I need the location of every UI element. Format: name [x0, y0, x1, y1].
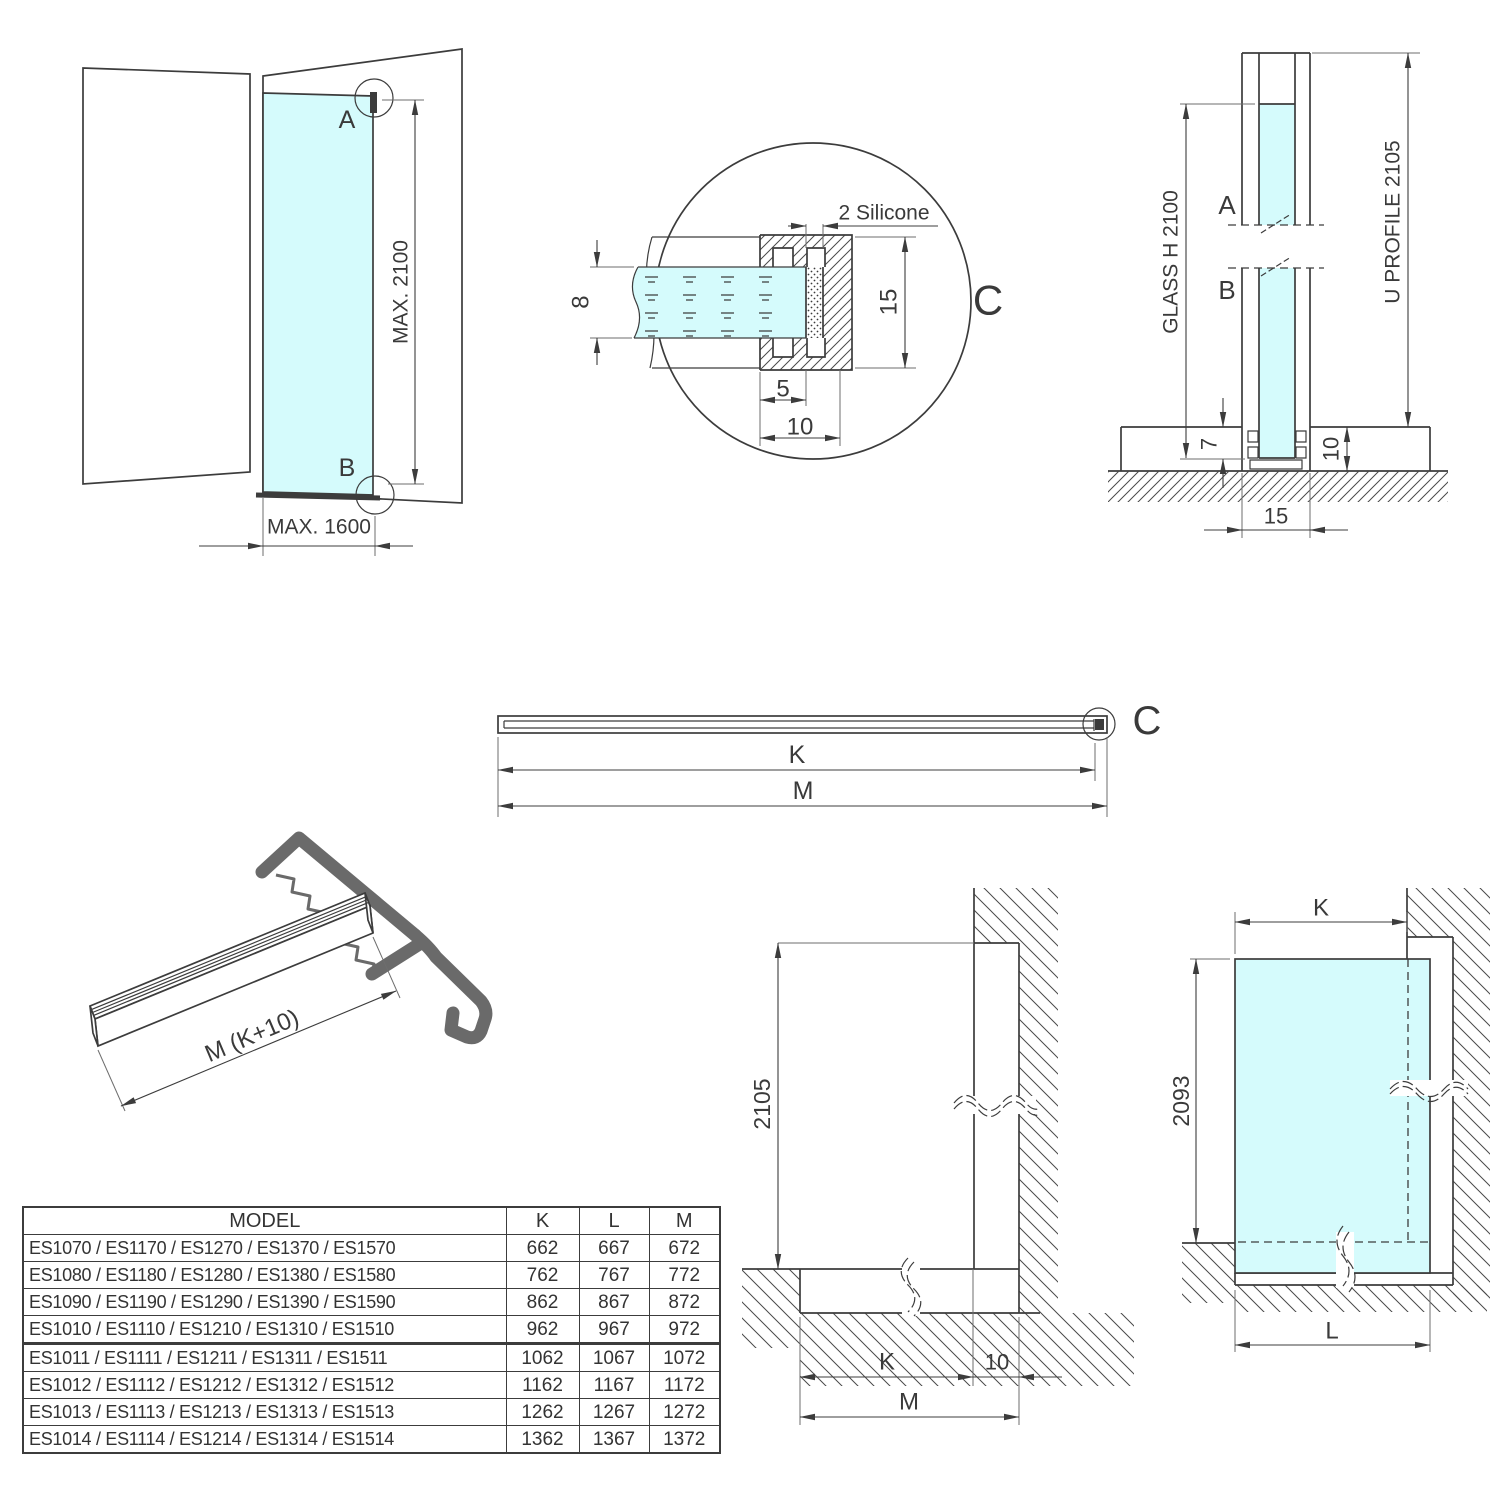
top-bracket	[370, 92, 377, 113]
dim-8-label: 8	[568, 295, 595, 308]
dim-2105-label: 2105	[749, 1078, 775, 1129]
dim-10-label: 10	[985, 1350, 1009, 1375]
dim-k-label: K	[789, 741, 806, 769]
floor-hatch-main	[1235, 1285, 1487, 1312]
silicone-joint	[806, 267, 823, 338]
glass-section	[632, 267, 806, 338]
dim-2105	[778, 943, 974, 1269]
dim-10-label: 10	[1319, 437, 1344, 461]
dim-max-1600: MAX. 1600	[267, 516, 371, 539]
col-model: MODEL	[23, 1207, 506, 1235]
glass-panel	[263, 93, 373, 495]
dim-k-label: K	[1313, 895, 1329, 922]
floor-hatch-left	[1182, 1243, 1235, 1303]
table-row: ES1010 / ES1110 / ES1210 / ES1310 / ES15…	[23, 1316, 720, 1344]
view-detail-c: 8 15 5 10 2 Silicone C	[568, 143, 1004, 459]
section-label-a: A	[1218, 190, 1236, 220]
dim-5-label: 5	[776, 376, 789, 403]
dim-l-label: L	[1325, 1318, 1338, 1345]
u-profile-3d	[90, 893, 373, 1046]
break-lines	[1228, 225, 1324, 268]
table-row: ES1013 / ES1113 / ES1213 / ES1313 / ES15…	[23, 1399, 720, 1426]
label-a: A	[339, 106, 356, 134]
dim-15-label: 15	[1264, 504, 1288, 529]
dim-glass-8	[590, 240, 634, 365]
dim-max-2100: MAX. 2100	[390, 240, 413, 344]
glass-upper	[1259, 104, 1295, 225]
table-row: ES1090 / ES1190 / ES1290 / ES1390 / ES15…	[23, 1289, 720, 1316]
view-elevation-frame: 2105 K 10 M	[742, 888, 1134, 1425]
table-header-row: MODEL K L M	[23, 1207, 720, 1235]
glass-panel	[1235, 959, 1430, 1273]
table-row: ES1011 / ES1111 / ES1211 / ES1311 / ES15…	[23, 1344, 720, 1372]
u-profile-label: U PROFILE 2105	[1382, 140, 1405, 303]
label-c: C	[1133, 699, 1162, 743]
view-perspective: A B MAX. 2100 MAX. 1600	[83, 49, 462, 556]
glass-h-label: GLASS H 2100	[1160, 190, 1183, 334]
view-section: A B GLASS H 2100 U PROFILE 2105 7 10 15	[1108, 53, 1448, 538]
glass-lower	[1259, 268, 1295, 458]
view-profile-top: K M C	[498, 699, 1161, 817]
dim-2093	[1190, 959, 1230, 1243]
view-elevation-glass: K 2093 L	[1168, 888, 1490, 1352]
floor-hatch-main	[800, 1313, 1134, 1386]
floor-hatch	[1108, 471, 1448, 502]
table-row: ES1012 / ES1112 / ES1212 / ES1312 / ES15…	[23, 1372, 720, 1399]
profile-bar	[498, 716, 1107, 733]
view-profile-3d: M (K+10)	[90, 838, 486, 1111]
table-row: ES1070 / ES1170 / ES1270 / ES1370 / ES15…	[23, 1235, 720, 1262]
model-table: MODEL K L M ES1070 / ES1170 / ES1270 / E…	[22, 1206, 721, 1454]
dim-k-label: K	[879, 1349, 895, 1376]
left-wall	[83, 68, 250, 484]
dim-10-label: 10	[787, 414, 814, 441]
dim-m-label: M	[899, 1389, 919, 1416]
dim-2093-label: 2093	[1168, 1075, 1194, 1126]
col-m: M	[649, 1207, 720, 1235]
label-b: B	[339, 454, 356, 482]
silicone-label: 2 Silicone	[838, 202, 929, 225]
detail-c-label: C	[973, 277, 1003, 324]
section-label-b: B	[1218, 275, 1235, 305]
dim-15-label: 15	[876, 289, 903, 316]
table-row: ES1014 / ES1114 / ES1214 / ES1314 / ES15…	[23, 1426, 720, 1454]
profile-end-cap	[1095, 719, 1104, 730]
table-row: ES1080 / ES1180 / ES1280 / ES1380 / ES15…	[23, 1262, 720, 1289]
col-l: L	[579, 1207, 649, 1235]
floor-hatch-left	[742, 1269, 800, 1348]
dim-m-label: M	[793, 777, 814, 805]
bottom-profile-strip	[256, 495, 380, 498]
dim-7-label: 7	[1197, 438, 1222, 450]
col-k: K	[506, 1207, 579, 1235]
